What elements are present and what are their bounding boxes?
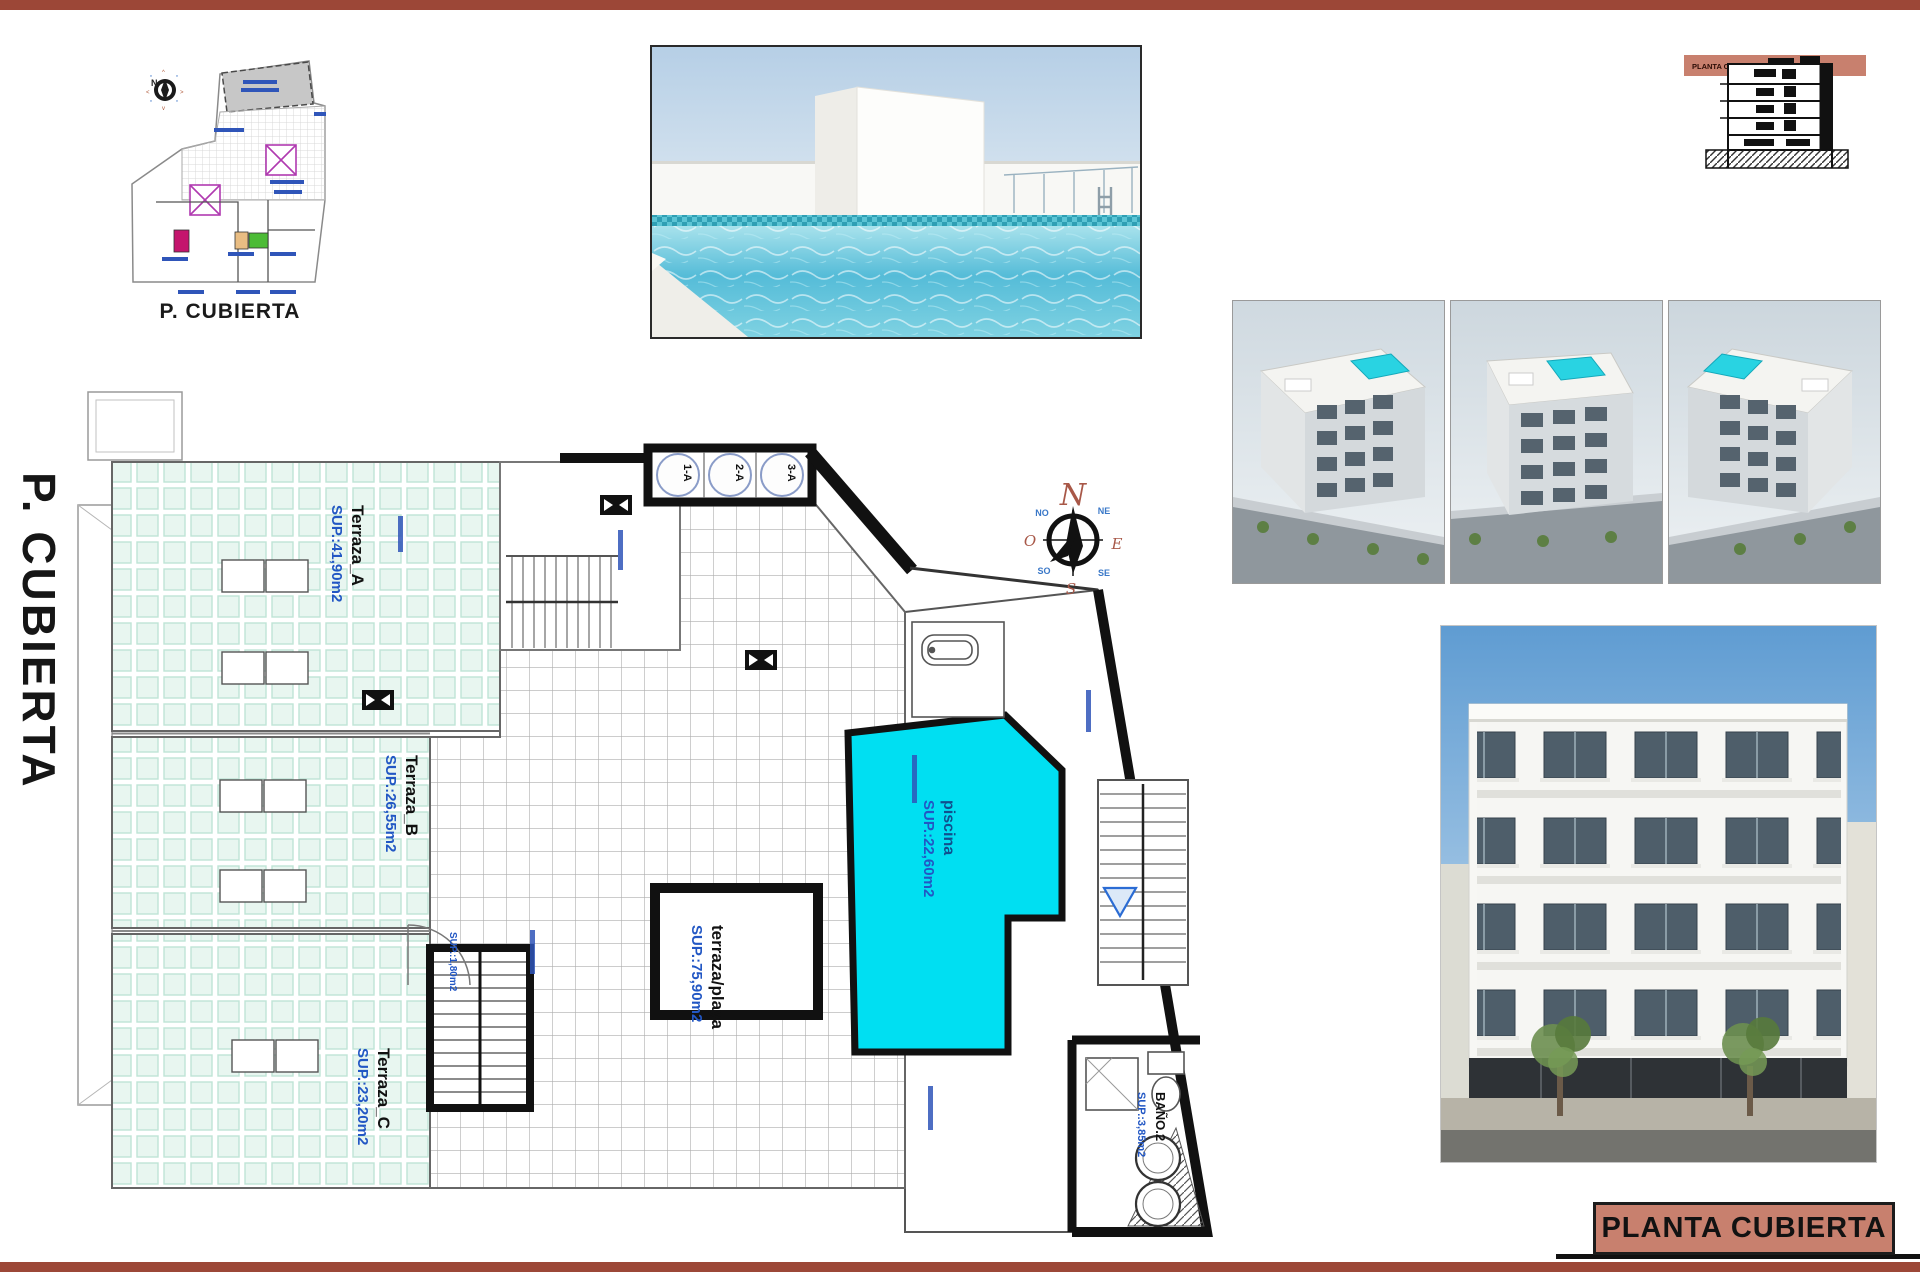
label-terraza-c-name: Terraza_C: [374, 1048, 393, 1129]
aerial-renders-row: [1232, 300, 1880, 584]
shaft-label-1a: 1-A: [681, 464, 693, 482]
label-terraza-b-area: SUP.:26,55m2: [382, 755, 399, 852]
facade-road: [1441, 1130, 1876, 1162]
section-building: [1706, 56, 1848, 168]
section-drawing: PLANTA CUBIERTA: [1682, 44, 1872, 178]
label-piscina-area: SUP.:22,60m2: [920, 800, 937, 897]
label-terraza-c-area: SUP.:23,20m2: [354, 1048, 371, 1145]
label-bano-name: BAÑO.2: [1153, 1092, 1168, 1141]
label-terraza-b-name: Terraza_B: [402, 755, 421, 836]
svg-text:N: N: [151, 78, 158, 88]
plan-shaft-block: 1-A 2-A 3-A: [648, 448, 812, 502]
plan-right-stair: [1098, 780, 1188, 985]
render-volume-side: [815, 87, 857, 231]
render-volume-front: [857, 87, 984, 225]
label-terraza-a-area: SUP.:41,90m2: [328, 505, 345, 602]
compass-se: SE: [1098, 568, 1110, 578]
facade-ground-floor: [1469, 1058, 1847, 1100]
margin-title: P. CUBIERTA: [12, 472, 66, 790]
plan-skylight-box: [655, 888, 818, 1015]
label-bano-area: SUP.:3,85m2: [1135, 1092, 1147, 1157]
facade-sidewalk: [1441, 1098, 1876, 1130]
site-plan-caption: P. CUBIERTA: [120, 300, 340, 324]
label-stair-area: SUP.:1,80m2: [447, 932, 458, 992]
svg-text:^: ^: [162, 70, 165, 76]
label-playa-name: terraza/playa: [708, 925, 727, 1029]
compass-so: SO: [1037, 566, 1050, 576]
svg-text:*: *: [150, 100, 152, 106]
pool-render-drawing: [652, 47, 1140, 337]
compass-ne: NE: [1098, 506, 1111, 516]
site-marker-green: [249, 233, 268, 248]
svg-text:*: *: [176, 75, 178, 81]
render-mosaic-band: [652, 215, 1140, 226]
site-marker-magenta: [174, 230, 189, 252]
plan-parapet: [88, 392, 182, 460]
floor-plan-drawing: 1-A 2-A 3-A: [70, 385, 1220, 1255]
sheet-canvas: P. CUBIERTA: [0, 0, 1920, 1280]
label-piscina-name: piscina: [940, 800, 957, 855]
compass-o: O: [1024, 532, 1036, 550]
svg-text:*: *: [176, 100, 178, 106]
compass-s: S: [1066, 580, 1076, 598]
compass-no: NO: [1035, 508, 1049, 518]
plan-tub-room: [912, 622, 1004, 717]
shaft-label-2a: 2-A: [733, 464, 745, 482]
facade-neighbor-right: [1847, 822, 1876, 1098]
label-terraza-a-name: Terraza_A: [348, 505, 367, 586]
svg-text:<: <: [146, 90, 150, 96]
facade-neighbor-left: [1441, 864, 1469, 1098]
plan-terraza-a: [112, 462, 500, 731]
site-roof-area: [222, 62, 313, 112]
sheet-title: PLANTA CUBIERTA: [1601, 1212, 1886, 1245]
plan-bottom-stair: [408, 925, 530, 1108]
aerial-render-2: [1450, 300, 1663, 584]
aerial-render-1: [1232, 300, 1445, 584]
facade-render-image: [1440, 625, 1877, 1163]
site-plan-drawing: N ^v<> ****: [118, 52, 423, 297]
label-playa-area: SUP.:75,90m2: [688, 925, 705, 1022]
facade-floors: [1477, 722, 1841, 1066]
site-marker-orange: [235, 232, 248, 249]
title-block: PLANTA CUBIERTA: [1593, 1202, 1895, 1255]
pool-render-image: [650, 45, 1142, 339]
site-compass-icon: N ^v<> ****: [146, 70, 184, 112]
shaft-label-3a: 3-A: [785, 464, 797, 482]
compass-n: N: [1059, 478, 1088, 513]
compass-e: E: [1111, 535, 1123, 553]
plan-compass: N S O E NO NE SO SE: [1024, 478, 1123, 598]
aerial-render-3: [1668, 300, 1881, 584]
top-accent-bar: [0, 0, 1920, 10]
svg-text:>: >: [180, 90, 184, 96]
svg-text:v: v: [162, 106, 165, 112]
bottom-accent-bar: [0, 1262, 1920, 1272]
plan-awning-strip: [78, 505, 112, 1105]
svg-text:*: *: [150, 75, 152, 81]
